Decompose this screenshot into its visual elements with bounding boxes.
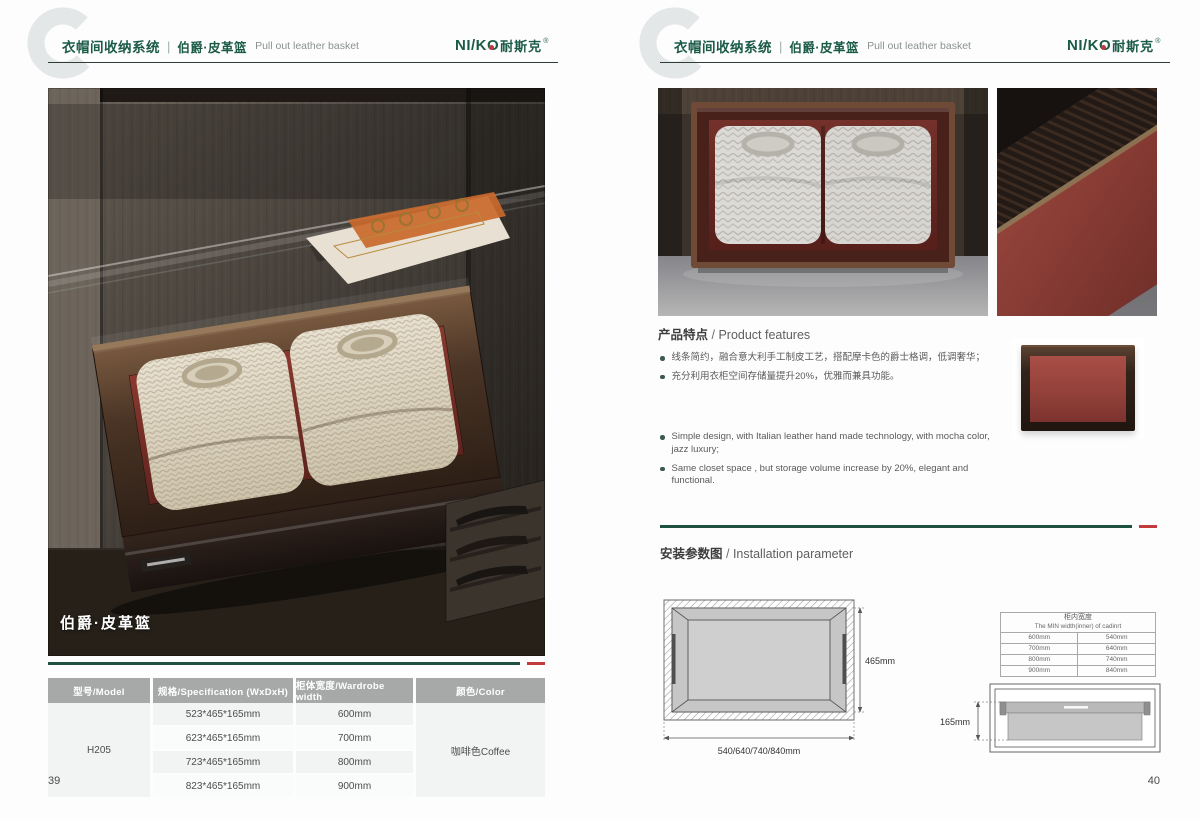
spec-table-header: 型号/Model 规格/Specification (WxDxH) 柜体宽度/W…: [48, 678, 545, 701]
header-rule: [660, 62, 1170, 63]
width-value: 800mm: [296, 751, 413, 773]
col-wardrobe-width: 柜体宽度/Wardrobe width: [296, 678, 413, 703]
col-color: 颜色/Color: [416, 678, 545, 703]
min-width-table-title: 柜内宽度 The MIN width(inner) of cadinrt: [1001, 613, 1156, 633]
product-title-cn: 伯爵·皮革篮: [789, 37, 859, 56]
spec-table: 型号/Model 规格/Specification (WxDxH) 柜体宽度/W…: [48, 678, 545, 797]
brand-logo: NI/KO 耐斯克 ®: [455, 36, 548, 55]
photo-caption: 伯爵·皮革篮: [60, 612, 152, 633]
bullet-dot-icon: [660, 467, 665, 472]
table-row: 700mm 640mm: [1001, 643, 1156, 654]
logo-o-dot-icon: [1101, 45, 1106, 50]
spec-table-body: H205 523*465*165mm 600mm 623*465*165mm 7…: [48, 703, 545, 797]
bullet-dot-icon: [660, 375, 665, 380]
drawer-topview-photo: [658, 88, 988, 316]
color-value: 咖啡色Coffee: [416, 703, 545, 797]
topview-width-label: 540/640/740/840mm: [718, 746, 801, 756]
product-title-en: Pull out leather basket: [255, 40, 359, 52]
col-specification: 规格/Specification (WxDxH): [153, 678, 293, 703]
features-heading: 产品特点 / Product features: [658, 324, 810, 343]
sideview-dimension-diagram: 165mm: [938, 678, 1163, 766]
product-title-en: Pull out leather basket: [867, 40, 971, 52]
table-row: 600mm 540mm: [1001, 632, 1156, 643]
left-section-divider: [48, 662, 545, 665]
feature-bullet-en: Simple design, with Italian leather hand…: [658, 431, 1003, 457]
basket-corner-art: [997, 88, 1157, 316]
wardrobe-photo: 伯爵·皮革篮: [48, 88, 545, 656]
spec-value: 723*465*165mm: [153, 751, 293, 773]
table-row: 900mm 840mm: [1001, 665, 1156, 676]
header-divider: |: [779, 39, 782, 54]
topview-depth-label: 465mm: [865, 656, 895, 666]
installation-heading: 安装参数图 / Installation parameter: [660, 543, 853, 562]
brand-logo-cn: 耐斯克: [1112, 36, 1154, 55]
spec-value: 823*465*165mm: [153, 775, 293, 797]
registered-mark: ®: [1155, 38, 1160, 45]
right-page-header: 衣帽间收纳系统 | 伯爵·皮革篮 Pull out leather basket: [674, 34, 1064, 58]
basket-inset-image: [1012, 338, 1144, 438]
wardrobe-photo-art: [48, 88, 545, 656]
bullet-dot-icon: [660, 356, 665, 361]
header-rule: [48, 62, 558, 63]
drawer-topview-art: [658, 88, 988, 316]
feature-bullet-cn: 充分利用衣柜空间存储量提升20%，优雅而兼具功能。: [658, 371, 1003, 384]
topview-dimension-diagram: 465mm 540/640/740/840mm: [652, 596, 902, 764]
system-title: 衣帽间收纳系统: [62, 36, 160, 56]
features-cn-list: 线条简约，融合意大利手工制皮工艺，搭配摩卡色的爵士格调，低调奢华； 充分利用衣柜…: [658, 352, 1003, 390]
page-number-right: 40: [1122, 775, 1160, 787]
spec-value: 623*465*165mm: [153, 727, 293, 749]
spec-value: 523*465*165mm: [153, 703, 293, 725]
table-row: 800mm 740mm: [1001, 654, 1156, 665]
basket-corner-photo: [997, 88, 1157, 316]
registered-mark: ®: [543, 38, 548, 45]
header-divider: |: [167, 39, 170, 54]
system-title: 衣帽间收纳系统: [674, 36, 772, 56]
divider-red-bar: [1139, 525, 1157, 528]
feature-bullet-en: Same closet space , but storage volume i…: [658, 463, 1003, 489]
bullet-dot-icon: [660, 435, 665, 440]
brand-logo-cn: 耐斯克: [500, 36, 542, 55]
width-value: 900mm: [296, 775, 413, 797]
col-model: 型号/Model: [48, 678, 150, 703]
model-value: H205: [48, 703, 150, 797]
features-en-list: Simple design, with Italian leather hand…: [658, 431, 1003, 494]
catalog-spread: { "colors": { "brand_green": "#1b5a47", …: [0, 0, 1200, 820]
width-value: 700mm: [296, 727, 413, 749]
width-value: 600mm: [296, 703, 413, 725]
sideview-height-label: 165mm: [940, 717, 970, 727]
divider-red-bar: [527, 662, 545, 665]
left-page-header: 衣帽间收纳系统 | 伯爵·皮革篮 Pull out leather basket: [62, 34, 452, 58]
divider-green-bar: [48, 662, 520, 665]
min-width-table: 柜内宽度 The MIN width(inner) of cadinrt 600…: [1000, 612, 1156, 677]
feature-bullet-cn: 线条简约，融合意大利手工制皮工艺，搭配摩卡色的爵士格调，低调奢华；: [658, 352, 1003, 365]
brand-logo: NI/KO 耐斯克 ®: [1067, 36, 1160, 55]
right-section-divider: [660, 525, 1157, 528]
logo-o-dot-icon: [489, 45, 494, 50]
product-title-cn: 伯爵·皮革篮: [177, 37, 247, 56]
divider-green-bar: [660, 525, 1132, 528]
basket-inset-leather: [1030, 356, 1126, 422]
page-number-left: 39: [48, 775, 60, 787]
basket-inset-frame: [1021, 345, 1135, 431]
